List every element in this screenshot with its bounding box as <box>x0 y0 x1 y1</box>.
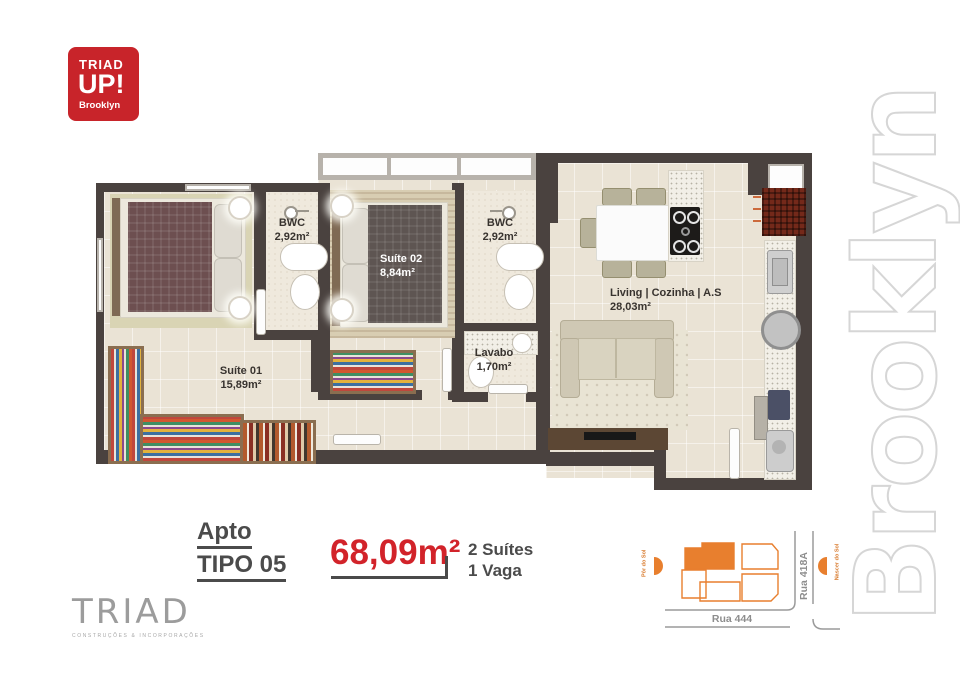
bed-headboard <box>112 198 120 316</box>
dining-chair <box>636 188 666 206</box>
room-area: 15,89m² <box>182 378 300 392</box>
window-glass <box>391 158 457 175</box>
sofa-seat <box>578 338 656 380</box>
sink-basin <box>772 258 788 286</box>
bed-cover <box>128 202 212 312</box>
door-leaf <box>256 289 266 335</box>
builder-name: TRIAD <box>72 592 205 632</box>
lamp-icon <box>330 298 354 322</box>
wall <box>464 323 536 331</box>
wardrobe <box>330 350 416 394</box>
builder-logo: TRIAD CONSTRUÇÕES & INCORPORAÇÕES <box>72 592 205 639</box>
unit-label-line1: Apto <box>197 520 252 549</box>
shower-hose <box>295 210 309 212</box>
room-area: 2,92m² <box>264 230 320 244</box>
wall <box>536 153 558 223</box>
door-leaf <box>488 384 528 394</box>
room-name: Suíte 01 <box>182 364 300 378</box>
dining-table <box>596 205 670 261</box>
wall <box>558 153 750 163</box>
laundry-cloth <box>768 390 790 420</box>
tv <box>584 432 636 440</box>
wall <box>96 183 104 464</box>
dining-chair <box>602 260 632 278</box>
sunrise-label: Nascer do Sol <box>835 546 842 580</box>
wardrobe <box>108 346 144 464</box>
room-label-suite01: Suíte 01 15,89m² <box>182 364 300 393</box>
unit-type-label: Apto TIPO 05 <box>197 520 286 586</box>
street-label-right: Rua 418A <box>798 552 810 600</box>
window-glass <box>187 186 249 189</box>
feature-vaga: 1 Vaga <box>468 560 533 581</box>
room-label-bwc2: BWC 2,92m² <box>462 216 538 245</box>
room-area: 8,84m² <box>380 266 422 280</box>
grill <box>762 188 806 236</box>
knob-icon <box>681 227 690 236</box>
unit-label-line2: TIPO 05 <box>197 553 286 582</box>
wall <box>452 392 488 402</box>
street-label-bottom: Rua 444 <box>712 613 752 625</box>
entry-door-leaf <box>333 434 381 445</box>
window-glass <box>323 158 387 175</box>
room-area: 2,92m² <box>462 230 538 244</box>
lamp-icon <box>228 196 252 220</box>
room-name: Living | Cozinha | A.S <box>610 286 721 300</box>
sink-icon <box>496 243 544 271</box>
wardrobe <box>140 414 244 464</box>
door-leaf <box>442 348 452 392</box>
unit-features: 2 Suítes 1 Vaga <box>468 539 533 582</box>
room-label-bwc1: BWC 2,92m² <box>264 216 320 245</box>
room-label-living: Living | Cozinha | A.S 28,03m² <box>610 286 721 315</box>
round-appliance <box>761 310 801 350</box>
room-area: 1,70m² <box>452 360 536 374</box>
shower-hose <box>490 210 502 212</box>
room-label-lavabo: Lavabo 1,70m² <box>452 346 536 375</box>
sofa-seam <box>615 338 617 378</box>
grill-tick <box>753 196 761 198</box>
grill-tick <box>753 220 761 222</box>
burner-icon <box>687 240 700 253</box>
window-glass <box>461 158 531 175</box>
sink-icon <box>280 243 328 271</box>
area-underline-bracket <box>331 556 448 579</box>
burner-icon <box>673 211 686 224</box>
room-area: 28,03m² <box>610 300 721 314</box>
triad-up-logo: TRIAD UP! Brooklyn <box>68 47 139 121</box>
site-plan: Rua 444 Rua 418A <box>640 518 855 663</box>
room-name: Lavabo <box>452 346 536 360</box>
wall <box>546 452 658 466</box>
building-footprint <box>682 543 778 601</box>
dining-chair <box>636 260 666 278</box>
highlighted-unit <box>685 543 734 569</box>
lamp-icon <box>330 194 354 218</box>
burner-icon <box>687 211 700 224</box>
toilet-icon <box>504 274 534 310</box>
room-name: BWC <box>264 216 320 230</box>
brochure-page: Brooklyn TRIAD UP! Brooklyn <box>0 0 960 679</box>
tank-basin <box>772 440 786 454</box>
sofa-arm <box>560 338 580 398</box>
wall <box>796 193 812 490</box>
dining-chair <box>602 188 632 206</box>
grill-tick <box>753 208 761 210</box>
builder-subtitle: CONSTRUÇÕES & INCORPORAÇÕES <box>72 633 205 639</box>
window-glass <box>99 240 101 310</box>
room-name: Suíte 02 <box>380 252 422 266</box>
room-name: BWC <box>462 216 538 230</box>
feature-suites: 2 Suítes <box>468 539 533 560</box>
door-leaf <box>729 428 740 479</box>
shoe-rack <box>240 420 316 464</box>
logo-line-up: UP! <box>78 69 125 100</box>
sofa-arm <box>654 338 674 398</box>
wall <box>311 340 330 392</box>
logo-line-brooklyn: Brooklyn <box>79 100 120 111</box>
toilet-icon <box>290 274 320 310</box>
sunset-label: Pôr do Sol <box>642 548 649 578</box>
room-label-suite02: Suíte 02 8,84m² <box>380 252 422 281</box>
street-lines <box>665 531 840 629</box>
lamp-icon <box>228 296 252 320</box>
burner-icon <box>673 240 686 253</box>
